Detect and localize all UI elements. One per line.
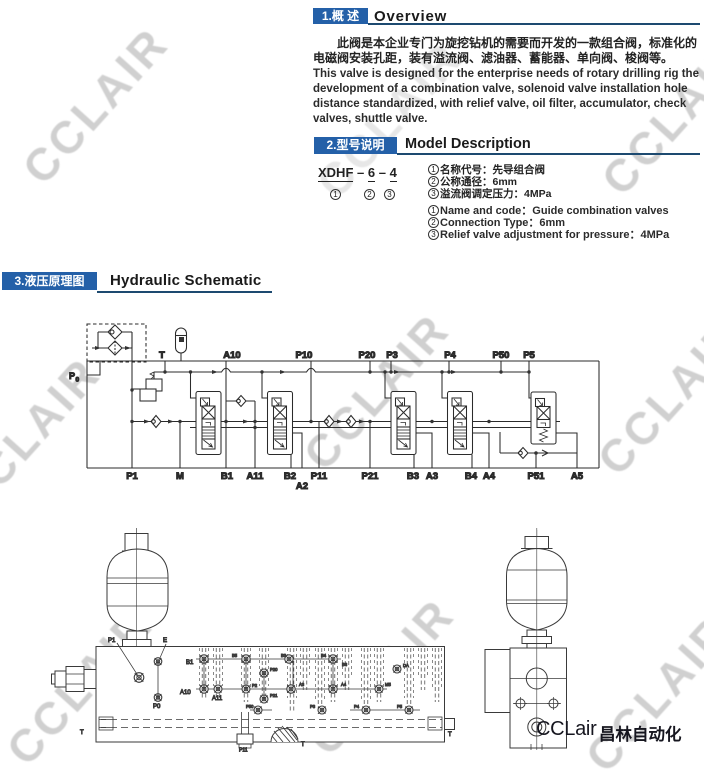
svg-text:P21: P21 [270, 693, 278, 698]
svg-text:P21: P21 [362, 471, 380, 482]
svg-text:A11: A11 [212, 696, 223, 702]
svg-text:T: T [80, 730, 84, 736]
svg-text:A10: A10 [223, 350, 240, 361]
svg-text:M: M [176, 471, 184, 482]
svg-text:P51: P51 [528, 471, 546, 482]
svg-text:A3: A3 [299, 682, 305, 687]
svg-text:A2: A2 [296, 481, 308, 492]
svg-text:P1: P1 [108, 638, 116, 644]
svg-text:DA: DA [403, 663, 409, 668]
svg-text:P5: P5 [523, 350, 535, 361]
svg-text:B1: B1 [221, 471, 234, 482]
svg-text:B3: B3 [281, 653, 287, 658]
svg-text:B4: B4 [321, 653, 327, 658]
svg-text:A5: A5 [571, 471, 584, 482]
svg-text:B2: B2 [284, 471, 296, 482]
svg-text:A3: A3 [426, 471, 438, 482]
svg-text:B4: B4 [465, 471, 478, 482]
svg-text:P4: P4 [354, 704, 360, 709]
svg-text:P0: P0 [153, 704, 161, 710]
svg-text:T: T [301, 742, 305, 748]
svg-text:P: P [69, 371, 75, 381]
svg-text:P11: P11 [311, 471, 328, 482]
svg-text:0: 0 [76, 377, 80, 384]
svg-text:P3: P3 [310, 704, 316, 709]
svg-text:A4: A4 [341, 682, 347, 687]
svg-text:P11: P11 [239, 748, 248, 753]
svg-text:T: T [159, 350, 165, 361]
svg-text:M5: M5 [385, 682, 391, 687]
svg-text:A11: A11 [247, 471, 265, 482]
svg-text:P20: P20 [270, 667, 278, 672]
svg-text:E: E [163, 638, 167, 644]
svg-text:B3: B3 [407, 471, 419, 482]
svg-text:P4: P4 [444, 350, 456, 361]
svg-text:P5: P5 [397, 704, 403, 709]
svg-text:P2: P2 [252, 683, 258, 688]
svg-text:P3: P3 [386, 350, 398, 361]
svg-text:T: T [448, 732, 452, 738]
svg-text:B6: B6 [342, 662, 348, 667]
svg-text:A4: A4 [483, 471, 496, 482]
svg-text:P1: P1 [126, 471, 138, 482]
svg-text:B1: B1 [186, 660, 194, 666]
svg-text:P10: P10 [296, 350, 313, 361]
svg-text:P20: P20 [359, 350, 376, 361]
svg-text:A10: A10 [180, 690, 191, 696]
svg-text:B5: B5 [232, 653, 238, 658]
svg-text:P50: P50 [493, 350, 510, 361]
svg-text:P50: P50 [246, 704, 254, 709]
